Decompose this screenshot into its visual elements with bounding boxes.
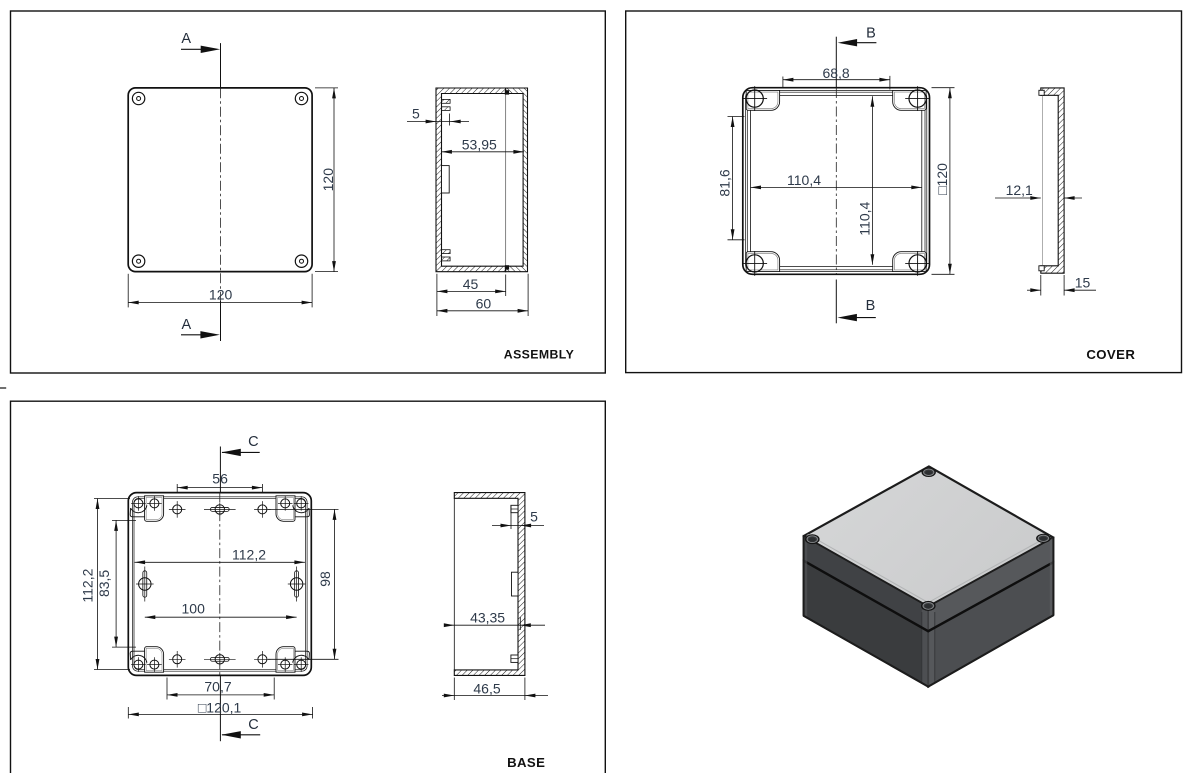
svg-text:120: 120 <box>320 168 336 192</box>
svg-text:81,6: 81,6 <box>717 169 733 196</box>
svg-text:□120: □120 <box>934 163 950 195</box>
svg-text:110,4: 110,4 <box>856 201 872 235</box>
svg-text:5: 5 <box>412 105 420 121</box>
svg-text:B: B <box>866 298 876 314</box>
svg-text:C: C <box>248 434 258 450</box>
svg-text:56: 56 <box>212 470 228 486</box>
svg-text:A: A <box>181 317 191 333</box>
svg-text:12,1: 12,1 <box>1006 182 1033 198</box>
svg-text:15: 15 <box>1075 274 1091 290</box>
svg-text:112,2: 112,2 <box>232 547 266 563</box>
svg-text:□120,1: □120,1 <box>198 699 242 715</box>
svg-text:68,8: 68,8 <box>822 65 849 81</box>
svg-text:BASE: BASE <box>507 755 545 770</box>
svg-text:COVER: COVER <box>1086 347 1135 362</box>
svg-text:46,5: 46,5 <box>473 680 500 696</box>
svg-text:ASSEMBLY: ASSEMBLY <box>504 348 574 362</box>
svg-text:83,5: 83,5 <box>96 570 112 597</box>
svg-text:120: 120 <box>209 286 233 302</box>
svg-text:53,95: 53,95 <box>462 136 497 152</box>
svg-text:110,4: 110,4 <box>787 172 821 188</box>
svg-text:45: 45 <box>463 276 479 292</box>
svg-text:60: 60 <box>476 295 492 311</box>
svg-text:100: 100 <box>182 601 206 617</box>
svg-text:112,2: 112,2 <box>80 568 96 602</box>
svg-text:43,35: 43,35 <box>470 609 505 625</box>
svg-text:70,7: 70,7 <box>204 678 231 694</box>
svg-text:B: B <box>866 25 876 41</box>
svg-text:A: A <box>181 31 191 47</box>
svg-text:C: C <box>248 717 258 733</box>
svg-text:98: 98 <box>317 571 333 587</box>
svg-text:5: 5 <box>530 509 538 525</box>
